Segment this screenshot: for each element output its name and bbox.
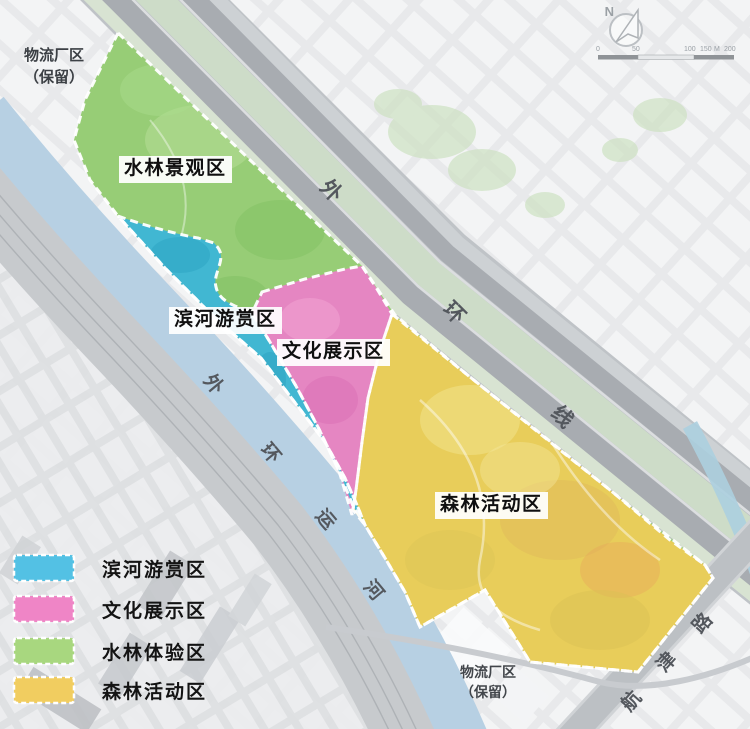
factory-note-bottom: 物流厂区 （保留） [446,662,530,703]
legend-swatch-shuilin [12,636,76,666]
legend-swatch-binhe [12,553,76,583]
scalebar-ticks: 0 50 100 150 M 200 [596,46,736,53]
scalebar [598,55,734,60]
planning-map: 水林景观区 滨河游赏区 文化展示区 森林活动区 物流厂区 （保留） 物流厂区 （… [0,0,750,729]
factory-note-top-line2: （保留） [8,67,100,89]
zone-label-binhe: 滨河游赏区 [169,307,282,334]
scalebar-tick: 150 [700,46,712,53]
compass-and-scalebar: N 0 50 100 150 M 200 [588,0,748,75]
scalebar-tick: 200 [724,46,736,53]
legend-item: 滨河游赏区 [12,553,207,583]
legend-label-senlin: 森林活动区 [102,677,207,704]
legend-item: 文化展示区 [12,594,207,624]
scalebar-tick: 100 [684,46,696,53]
factory-note-bottom-line1: 物流厂区 [446,662,530,682]
legend-label-shuilin: 水林体验区 [102,638,207,665]
factory-note-top-line1: 物流厂区 [8,45,100,67]
legend-item: 森林活动区 [12,675,207,705]
zone-label-shuilin: 水林景观区 [119,156,232,183]
legend-label-binhe: 滨河游赏区 [102,555,207,582]
zone-label-senlin: 森林活动区 [435,492,548,519]
legend-swatch-wenhua [12,594,76,624]
scalebar-tick: 0 [596,46,600,53]
legend-item: 水林体验区 [12,636,207,666]
scalebar-tick: 50 [632,46,640,53]
north-label: N [605,4,614,19]
zone-label-wenhua: 文化展示区 [277,339,390,366]
legend-label-wenhua: 文化展示区 [102,596,207,623]
scalebar-tick: M [714,46,720,53]
legend-swatch-senlin [12,675,76,705]
factory-note-top: 物流厂区 （保留） [8,45,100,89]
factory-note-bottom-line2: （保留） [446,682,530,702]
